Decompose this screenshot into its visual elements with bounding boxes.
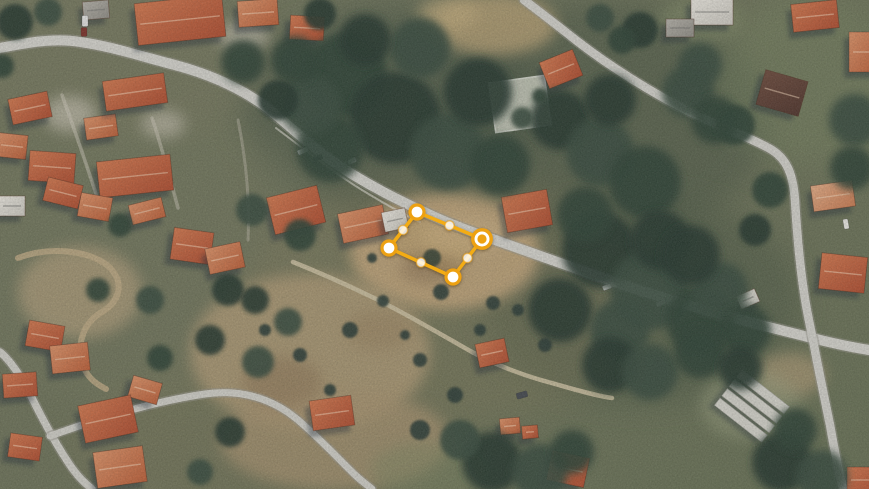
polygon-vertex-handle[interactable] bbox=[382, 241, 396, 255]
polygon-vertex-handle[interactable] bbox=[446, 270, 460, 284]
polygon-midpoint-handle[interactable] bbox=[463, 253, 472, 262]
polygon-selected-vertex-handle[interactable] bbox=[473, 230, 491, 248]
polygon-midpoint-handle[interactable] bbox=[398, 225, 407, 234]
polygon-midpoint-handle[interactable] bbox=[445, 221, 454, 230]
polygon-midpoint-handle[interactable] bbox=[416, 258, 425, 267]
polygon-vertex-handle[interactable] bbox=[410, 205, 424, 219]
map-viewport[interactable] bbox=[0, 0, 869, 489]
